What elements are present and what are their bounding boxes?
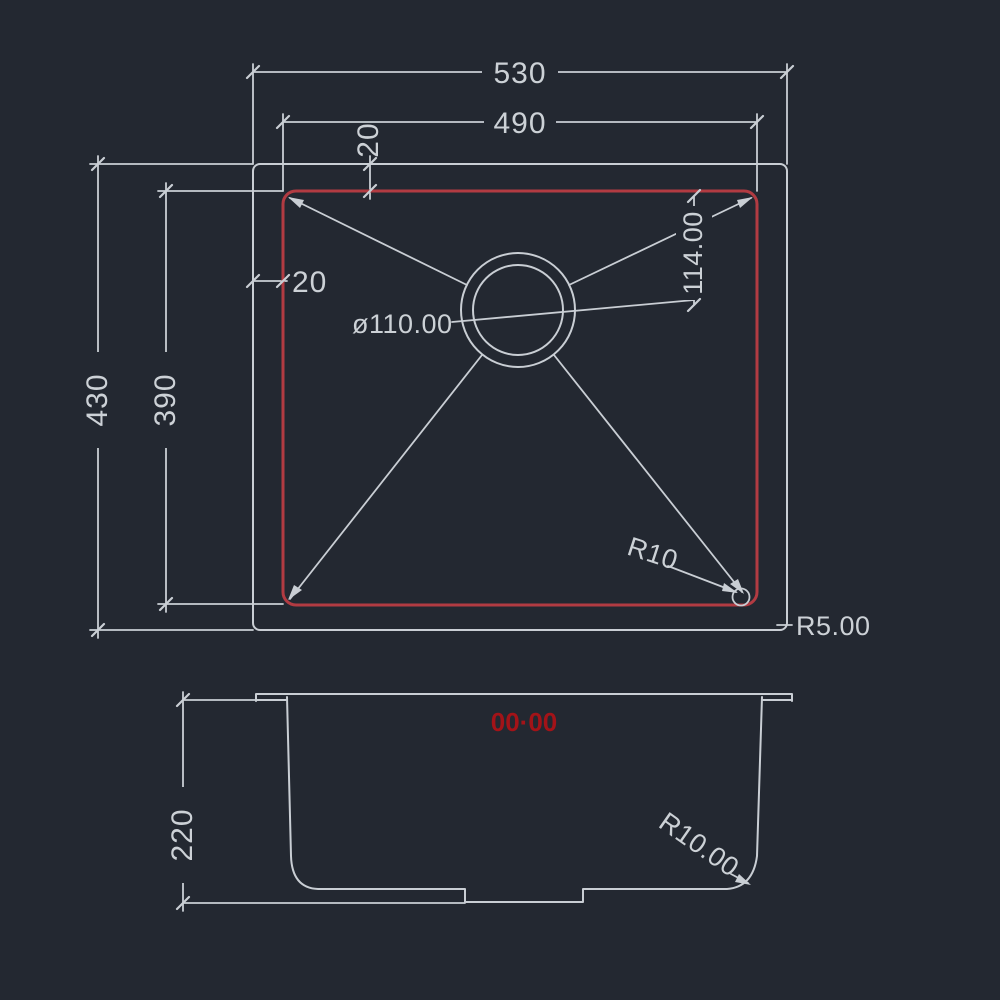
- section-view: 220 R10.00 00·00: [164, 692, 792, 911]
- dim-overall-depth: 430: [81, 373, 114, 426]
- diagonal-top-right: [569, 198, 751, 285]
- dim-top-offset: 20: [352, 122, 385, 157]
- arrowhead-top-left: [288, 197, 304, 208]
- dimension-ticks: [92, 66, 793, 636]
- dim-bowl-depth: 390: [149, 373, 182, 426]
- drain-inner-circle: [473, 265, 563, 355]
- dim-side-offset: 20: [292, 266, 327, 299]
- diameter-leader-line: [452, 300, 694, 322]
- dim-bowl-width: 490: [493, 107, 546, 140]
- dim-drain-diameter: ø110.00: [352, 309, 453, 339]
- dim-outer-corner-radius: R5.00: [796, 611, 871, 641]
- dim-bowl-corner-radius: R10: [624, 531, 682, 575]
- dim-bottom-corner-radius: R10.00: [654, 807, 745, 883]
- dim-drain-offset: 114.00: [678, 211, 708, 295]
- top-view: 530 490 430 390 20 20 114.00 ø110.00 R10…: [79, 54, 871, 641]
- dimline-220: [183, 692, 465, 911]
- drain-outer-circle: [461, 253, 575, 367]
- diagonal-bottom-left: [290, 355, 482, 599]
- drawing-canvas: 530 490 430 390 20 20 114.00 ø110.00 R10…: [0, 0, 1000, 1000]
- dim-overall-width: 530: [493, 57, 546, 90]
- sink-technical-drawing: 530 490 430 390 20 20 114.00 ø110.00 R10…: [0, 0, 1000, 1000]
- rim-profile: [256, 694, 792, 701]
- dim-bowl-height: 220: [166, 808, 199, 861]
- red-mark-label: 00·00: [491, 707, 558, 737]
- arrowhead-top-right: [737, 197, 753, 208]
